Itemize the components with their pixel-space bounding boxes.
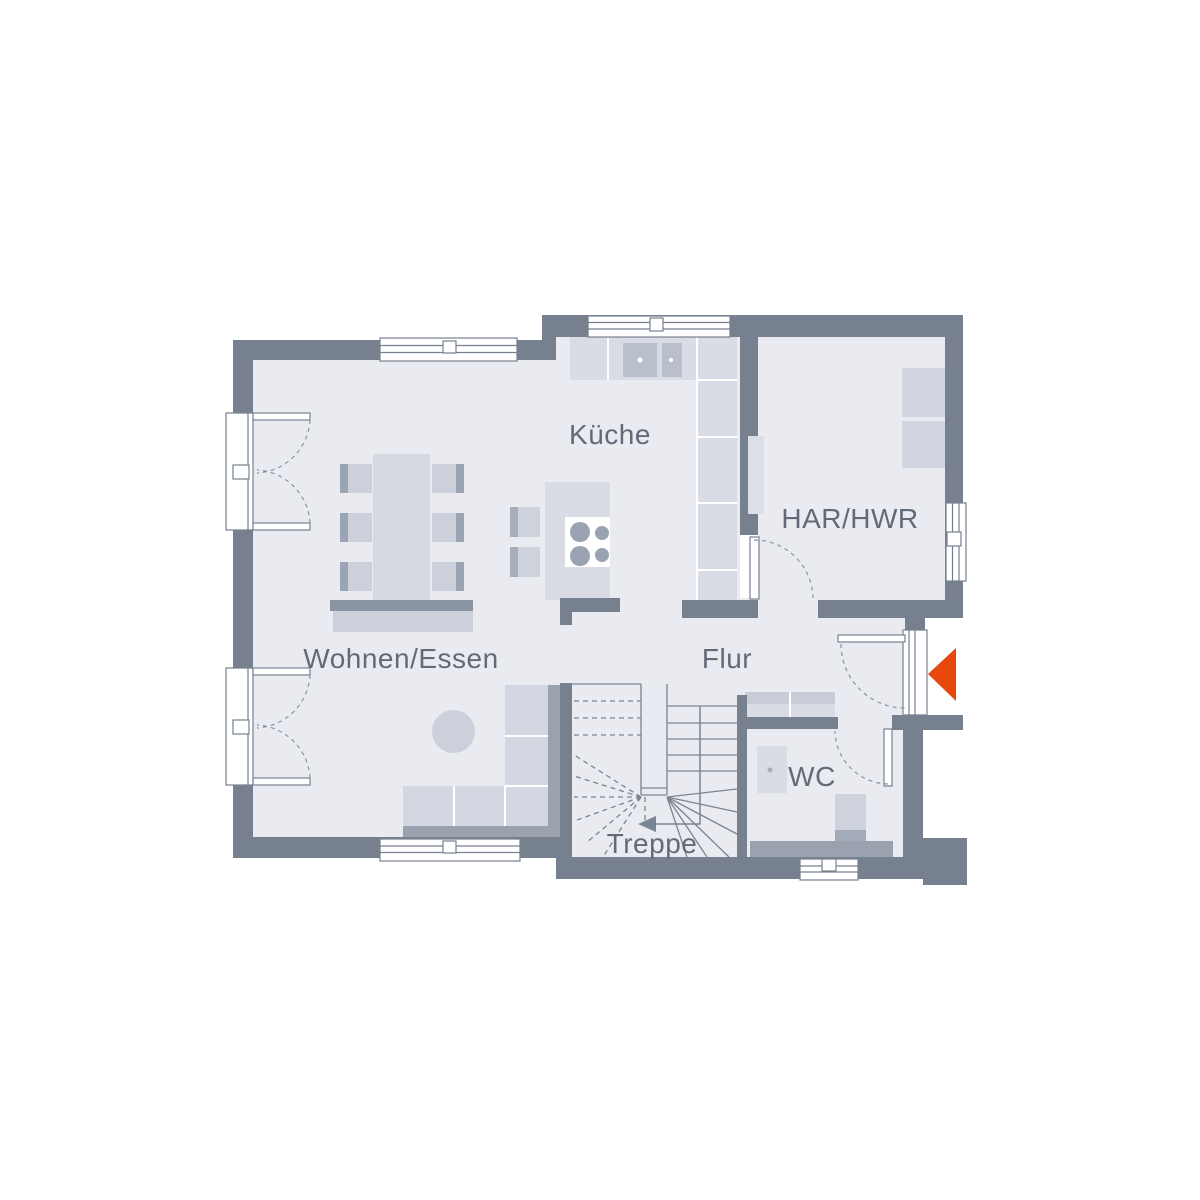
wall-island-stub (560, 598, 572, 625)
wall-segment (556, 857, 923, 879)
window-wc-bottom (800, 859, 858, 880)
chair-seat (432, 513, 456, 542)
wall-stairwell-right (737, 695, 747, 857)
chair-back (456, 562, 464, 591)
label-har-hwr: HAR/HWR (781, 503, 918, 534)
coffee-table (432, 710, 475, 753)
entrance-arrow-icon (928, 648, 956, 701)
label-wc: WC (788, 761, 836, 792)
har-wall-cabinet (748, 436, 764, 514)
label-wohnen-essen: Wohnen/Essen (303, 643, 498, 674)
sideboard-body (333, 611, 473, 632)
wall-stairwell-left (560, 683, 572, 857)
sideboard-top (330, 600, 473, 611)
stool-seat (518, 547, 540, 577)
label-treppe: Treppe (607, 828, 698, 859)
sofa-back-bottom (403, 826, 560, 838)
wall-segment (903, 730, 923, 860)
wall-segment (233, 785, 253, 837)
washer (902, 368, 945, 417)
floor-plan-canvas: Küche HAR/HWR Wohnen/Essen Flur WC Trepp… (0, 0, 1200, 1200)
stool-back (510, 547, 518, 577)
chair-seat (348, 464, 372, 493)
chair-seat (348, 513, 372, 542)
wall-wc-top (747, 717, 838, 729)
window-har-right (946, 503, 966, 581)
wall-segment (818, 600, 963, 618)
label-kueche: Küche (569, 419, 651, 450)
window-living-bottom (380, 839, 520, 861)
chair-seat (432, 562, 456, 591)
chair-back (340, 562, 348, 591)
chair-seat (432, 464, 456, 493)
wall-segment (923, 838, 967, 885)
chair-back (456, 464, 464, 493)
wc-toilet (835, 794, 866, 831)
wall-hall-north (682, 600, 758, 618)
wall-segment (892, 715, 963, 730)
dining-table (373, 454, 430, 601)
window-kitchen-top (588, 316, 730, 337)
sofa-back-right (548, 685, 560, 838)
stool-seat (518, 507, 540, 537)
chair-back (340, 513, 348, 542)
chair-back (340, 464, 348, 493)
stool-back (510, 507, 518, 537)
wall-segment (233, 530, 253, 668)
dryer (902, 421, 945, 468)
kitchen-counter-right (697, 337, 737, 600)
label-flur: Flur (702, 643, 752, 674)
chair-seat (348, 562, 372, 591)
wc-counter-band (750, 841, 893, 858)
floor-plan-drawing: Küche HAR/HWR Wohnen/Essen Flur WC Trepp… (0, 0, 1200, 1200)
window-living-top (380, 338, 517, 361)
chair-back (456, 513, 464, 542)
sofa-horizontal-arm (403, 786, 548, 826)
